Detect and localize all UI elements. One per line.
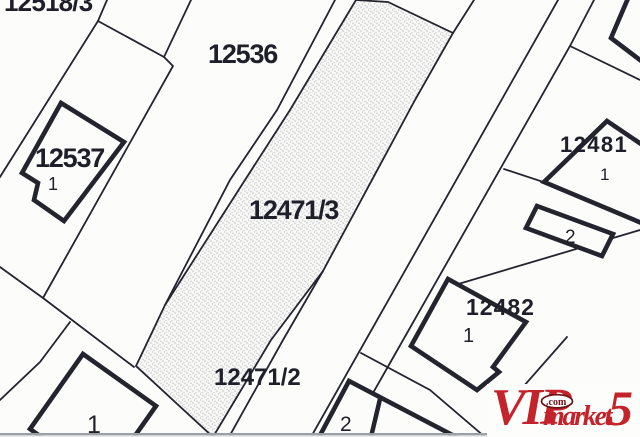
svg-text:12518/3: 12518/3 <box>4 0 93 17</box>
svg-text:12471/2: 12471/2 <box>214 364 301 391</box>
svg-text:1: 1 <box>600 165 609 184</box>
svg-text:1: 1 <box>48 174 58 194</box>
svg-text:12536: 12536 <box>208 39 278 69</box>
svg-text:5: 5 <box>608 380 633 436</box>
svg-text:12482: 12482 <box>466 294 535 320</box>
svg-text:2: 2 <box>340 413 352 436</box>
svg-text:12471/3: 12471/3 <box>249 195 339 225</box>
svg-text:2: 2 <box>565 227 576 248</box>
svg-text:.com: .com <box>546 397 567 408</box>
svg-text:1: 1 <box>463 325 474 347</box>
svg-text:12537: 12537 <box>35 143 104 173</box>
svg-text:12481: 12481 <box>560 132 628 157</box>
